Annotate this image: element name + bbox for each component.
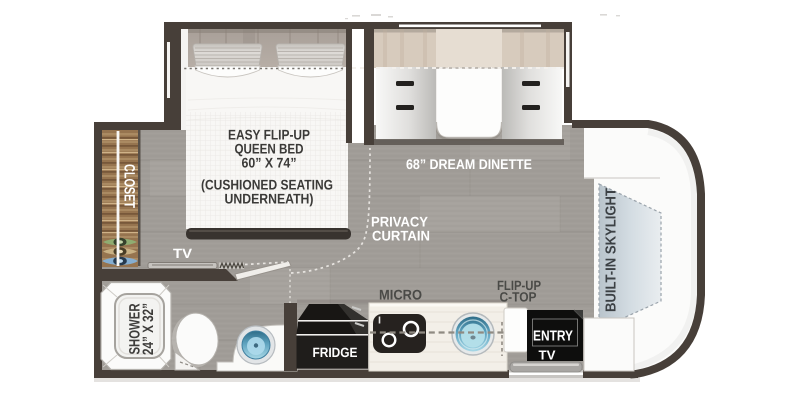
- svg-text:TV: TV: [539, 348, 556, 363]
- svg-text:TV: TV: [173, 246, 192, 261]
- svg-text:CLOSET: CLOSET: [121, 164, 138, 208]
- svg-text:ENTRY: ENTRY: [533, 329, 573, 345]
- svg-text:BUILT-IN SKYLIGHT: BUILT-IN SKYLIGHT: [604, 188, 620, 312]
- svg-text:UNDERNEATH): UNDERNEATH): [225, 191, 314, 207]
- svg-text:68” DREAM DINETTE: 68” DREAM DINETTE: [406, 156, 532, 172]
- svg-text:24” X 32”: 24” X 32”: [140, 303, 157, 355]
- svg-text:FRIDGE: FRIDGE: [313, 345, 358, 360]
- svg-text:MICRO: MICRO: [379, 287, 422, 303]
- svg-text:CURTAIN: CURTAIN: [372, 228, 430, 244]
- svg-text:C-TOP: C-TOP: [500, 290, 537, 305]
- svg-text:60” X 74”: 60” X 74”: [242, 155, 297, 171]
